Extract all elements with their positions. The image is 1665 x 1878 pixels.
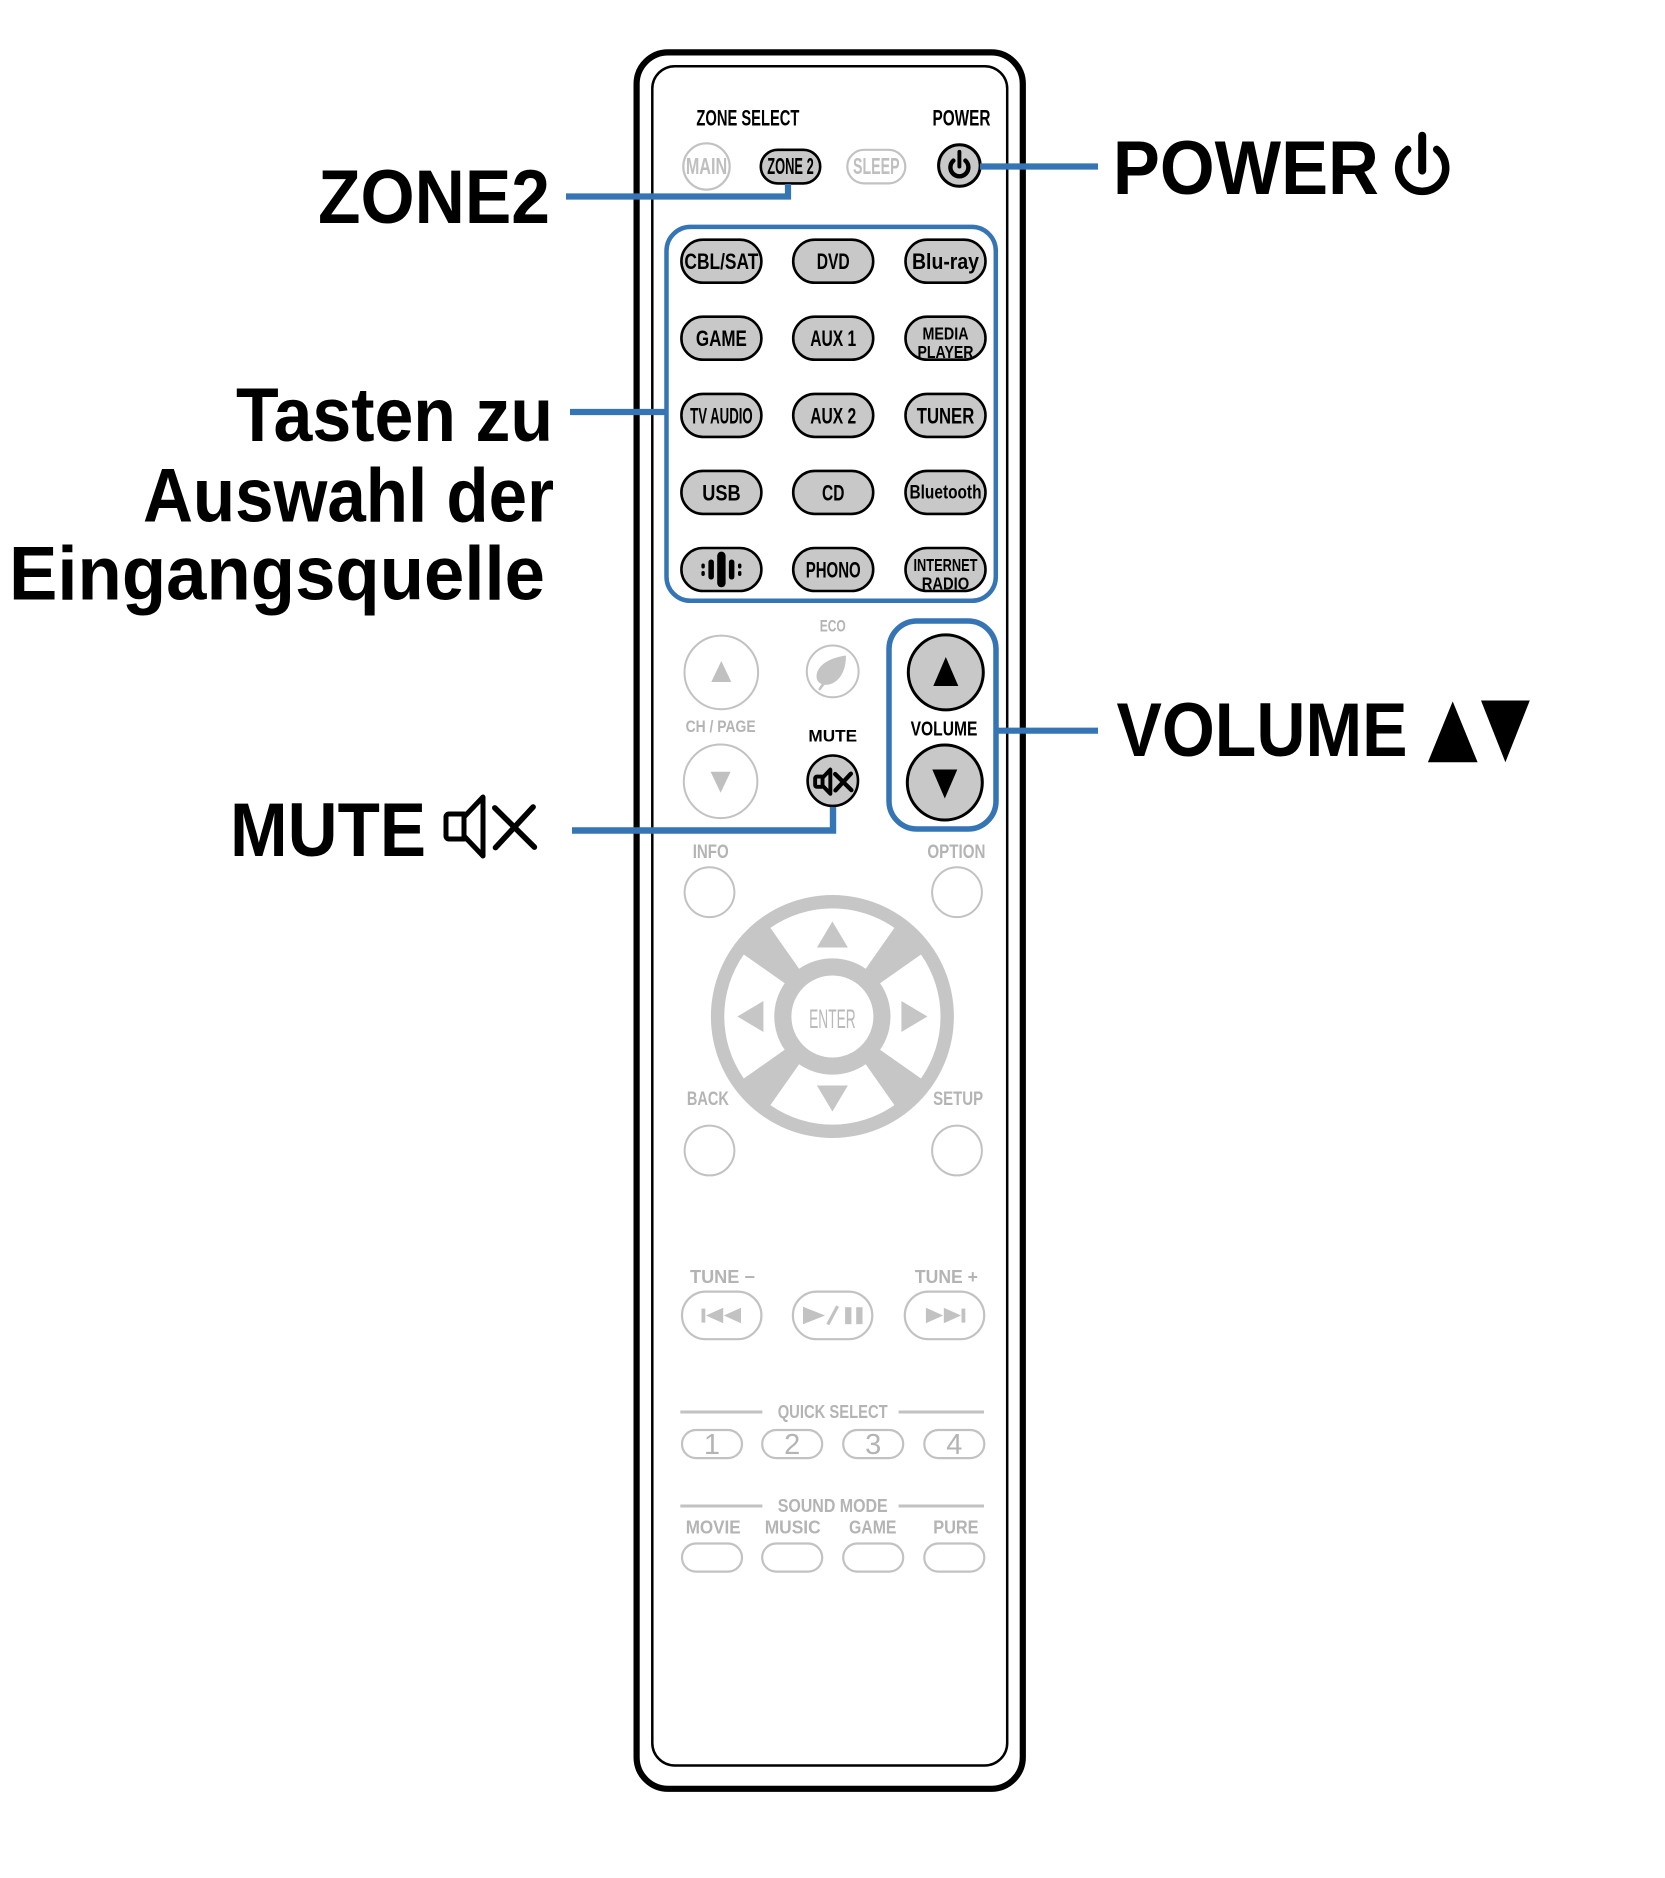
svg-text:MEDIA: MEDIA <box>923 324 969 344</box>
svg-text:SETUP: SETUP <box>933 1088 983 1110</box>
svg-text:MOVIE: MOVIE <box>686 1517 741 1538</box>
svg-text:RADIO: RADIO <box>922 574 970 594</box>
svg-text:BACK: BACK <box>687 1088 729 1110</box>
svg-text:4: 4 <box>946 1429 962 1461</box>
svg-text:SOUND MODE: SOUND MODE <box>778 1496 888 1516</box>
svg-text:ENTER: ENTER <box>809 1004 856 1034</box>
svg-text:PURE: PURE <box>933 1517 978 1538</box>
svg-text:PLAYER: PLAYER <box>918 342 974 362</box>
svg-text:QUICK SELECT: QUICK SELECT <box>778 1402 888 1422</box>
svg-text:TUNE −: TUNE − <box>690 1267 755 1287</box>
svg-text:AUX 2: AUX 2 <box>810 403 856 428</box>
svg-text:VOLUME: VOLUME <box>911 718 978 740</box>
svg-text:OPTION: OPTION <box>927 841 985 863</box>
svg-text:ZONE2: ZONE2 <box>318 155 550 240</box>
svg-text:Tasten zu: Tasten zu <box>236 373 553 458</box>
svg-text:CD: CD <box>822 480 844 505</box>
svg-text:TUNE +: TUNE + <box>915 1267 978 1287</box>
svg-text:PHONO: PHONO <box>806 558 861 583</box>
svg-text:3: 3 <box>865 1429 881 1461</box>
svg-text:Blu-ray: Blu-ray <box>912 249 980 274</box>
svg-text:TUNER: TUNER <box>917 403 975 428</box>
svg-text:ECO: ECO <box>820 617 846 636</box>
svg-text:1: 1 <box>704 1429 720 1461</box>
svg-text:SLEEP: SLEEP <box>853 153 900 179</box>
svg-text:TV AUDIO: TV AUDIO <box>690 403 753 428</box>
svg-text:Eingangsquelle: Eingangsquelle <box>9 532 545 617</box>
svg-text:MUTE: MUTE <box>230 788 426 873</box>
svg-text:ZONE SELECT: ZONE SELECT <box>696 106 799 131</box>
svg-text:Bluetooth: Bluetooth <box>910 482 982 503</box>
svg-text:MAIN: MAIN <box>686 153 727 179</box>
svg-text:MUTE: MUTE <box>808 727 857 746</box>
svg-text:USB: USB <box>702 480 740 505</box>
svg-text:POWER: POWER <box>933 106 991 131</box>
svg-text:2: 2 <box>784 1429 800 1461</box>
svg-text:ZONE 2: ZONE 2 <box>767 153 814 179</box>
svg-text:DVD: DVD <box>817 249 850 274</box>
svg-text:INTERNET: INTERNET <box>914 555 978 575</box>
svg-text:INFO: INFO <box>693 841 729 863</box>
svg-text:AUX 1: AUX 1 <box>810 326 856 351</box>
svg-text:CH / PAGE: CH / PAGE <box>686 717 756 736</box>
svg-text:VOLUME: VOLUME <box>1117 688 1408 773</box>
svg-text:GAME: GAME <box>849 1517 897 1538</box>
svg-text:Auswahl der: Auswahl der <box>143 454 554 539</box>
svg-text:MUSIC: MUSIC <box>765 1517 821 1538</box>
svg-text:GAME: GAME <box>696 326 747 351</box>
svg-text:POWER: POWER <box>1113 126 1379 211</box>
svg-text:CBL/SAT: CBL/SAT <box>684 249 758 274</box>
